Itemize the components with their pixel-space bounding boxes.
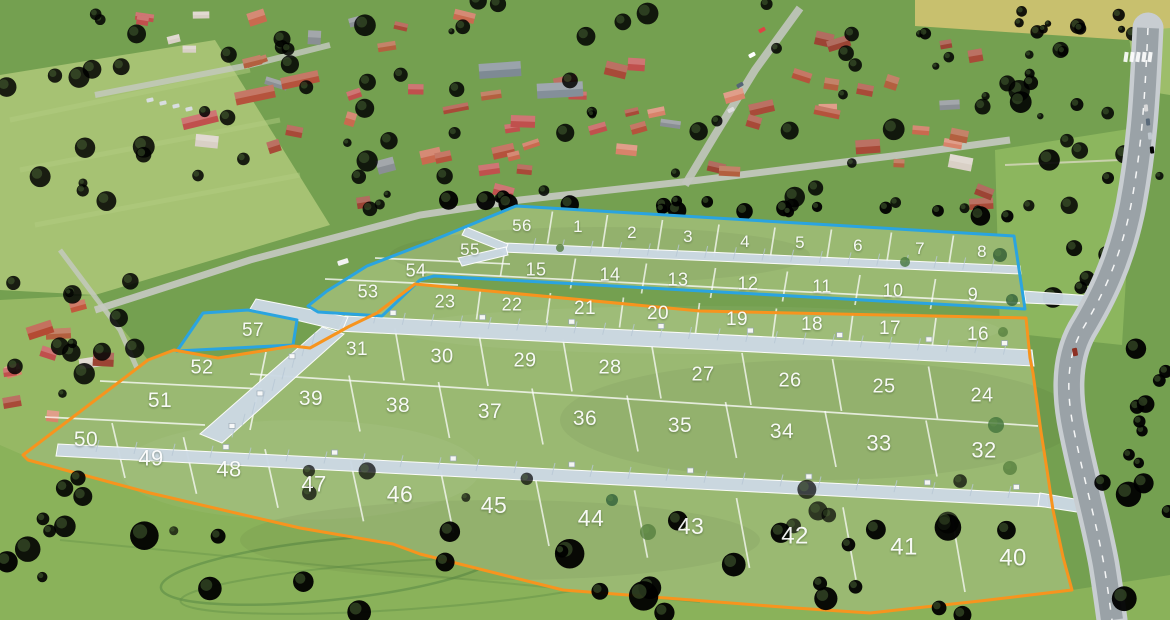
plot-label-4[interactable]: 4 <box>740 232 750 252</box>
plot-label-53[interactable]: 53 <box>358 281 379 302</box>
plot-label-40[interactable]: 40 <box>999 545 1027 573</box>
plot-label-54[interactable]: 54 <box>406 260 427 281</box>
plot-label-37[interactable]: 37 <box>478 400 502 424</box>
plot-label-55[interactable]: 55 <box>460 240 480 260</box>
plot-label-35[interactable]: 35 <box>668 414 692 438</box>
plot-label-24[interactable]: 24 <box>970 384 993 407</box>
plot-label-30[interactable]: 30 <box>430 345 453 368</box>
plot-label-12[interactable]: 12 <box>738 273 759 294</box>
plot-label-41[interactable]: 41 <box>890 534 918 562</box>
plot-label-50[interactable]: 50 <box>74 428 98 452</box>
plot-label-28[interactable]: 28 <box>598 356 621 379</box>
plot-label-38[interactable]: 38 <box>386 394 410 418</box>
plot-label-23[interactable]: 23 <box>435 291 456 312</box>
plot-label-27[interactable]: 27 <box>691 363 714 386</box>
plot-label-43[interactable]: 43 <box>678 513 704 540</box>
plot-label-22[interactable]: 22 <box>502 294 523 315</box>
plot-label-36[interactable]: 36 <box>573 407 597 431</box>
plot-label-9[interactable]: 9 <box>968 284 978 305</box>
plot-label-31[interactable]: 31 <box>346 339 368 361</box>
plot-label-10[interactable]: 10 <box>883 280 904 301</box>
plot-label-16[interactable]: 16 <box>967 324 989 346</box>
plot-label-32[interactable]: 32 <box>971 438 996 464</box>
plot-label-13[interactable]: 13 <box>668 269 689 290</box>
plot-label-1[interactable]: 1 <box>573 217 583 237</box>
plot-label-19[interactable]: 19 <box>726 309 748 331</box>
plot-label-42[interactable]: 42 <box>781 523 809 551</box>
plot-label-51[interactable]: 51 <box>148 389 172 413</box>
plot-label-47[interactable]: 47 <box>301 472 326 498</box>
plot-label-34[interactable]: 34 <box>770 420 794 444</box>
plot-number-layer: 1234567891011121314151617181920212223242… <box>0 0 1170 620</box>
plot-label-57[interactable]: 57 <box>242 320 264 342</box>
plot-label-18[interactable]: 18 <box>801 314 823 336</box>
plot-label-11[interactable]: 11 <box>812 276 832 297</box>
plot-label-17[interactable]: 17 <box>879 318 901 340</box>
plot-label-52[interactable]: 52 <box>190 356 213 379</box>
plot-label-20[interactable]: 20 <box>647 303 669 325</box>
plot-label-33[interactable]: 33 <box>866 431 891 457</box>
plot-label-44[interactable]: 44 <box>578 505 604 532</box>
plot-label-3[interactable]: 3 <box>683 227 693 247</box>
plot-label-21[interactable]: 21 <box>574 298 596 320</box>
plot-label-29[interactable]: 29 <box>513 349 536 372</box>
plot-label-6[interactable]: 6 <box>853 236 863 256</box>
plot-label-46[interactable]: 46 <box>387 481 413 508</box>
plot-label-7[interactable]: 7 <box>915 239 925 259</box>
plot-label-5[interactable]: 5 <box>795 233 805 253</box>
plot-label-56[interactable]: 56 <box>512 216 532 236</box>
plot-label-2[interactable]: 2 <box>627 223 637 243</box>
plot-label-8[interactable]: 8 <box>977 242 987 262</box>
plot-label-49[interactable]: 49 <box>138 446 163 472</box>
plot-label-45[interactable]: 45 <box>481 492 507 519</box>
plot-label-25[interactable]: 25 <box>872 375 895 398</box>
plot-label-48[interactable]: 48 <box>216 457 241 483</box>
site-plan-aerial: 1234567891011121314151617181920212223242… <box>0 0 1170 620</box>
plot-label-15[interactable]: 15 <box>526 259 547 280</box>
plot-label-26[interactable]: 26 <box>778 369 801 392</box>
plot-label-14[interactable]: 14 <box>600 264 621 285</box>
plot-label-39[interactable]: 39 <box>299 387 323 411</box>
